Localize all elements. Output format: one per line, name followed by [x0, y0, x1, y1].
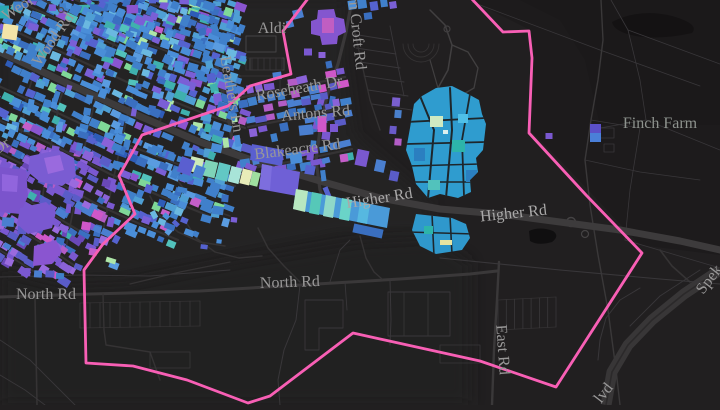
svg-text:Aldi: Aldi — [258, 20, 287, 37]
svg-text:Finch Farm: Finch Farm — [623, 115, 698, 132]
svg-text:East Rd: East Rd — [492, 324, 512, 375]
svg-text:North Rd: North Rd — [16, 286, 76, 303]
svg-text:North Rd: North Rd — [260, 273, 321, 292]
